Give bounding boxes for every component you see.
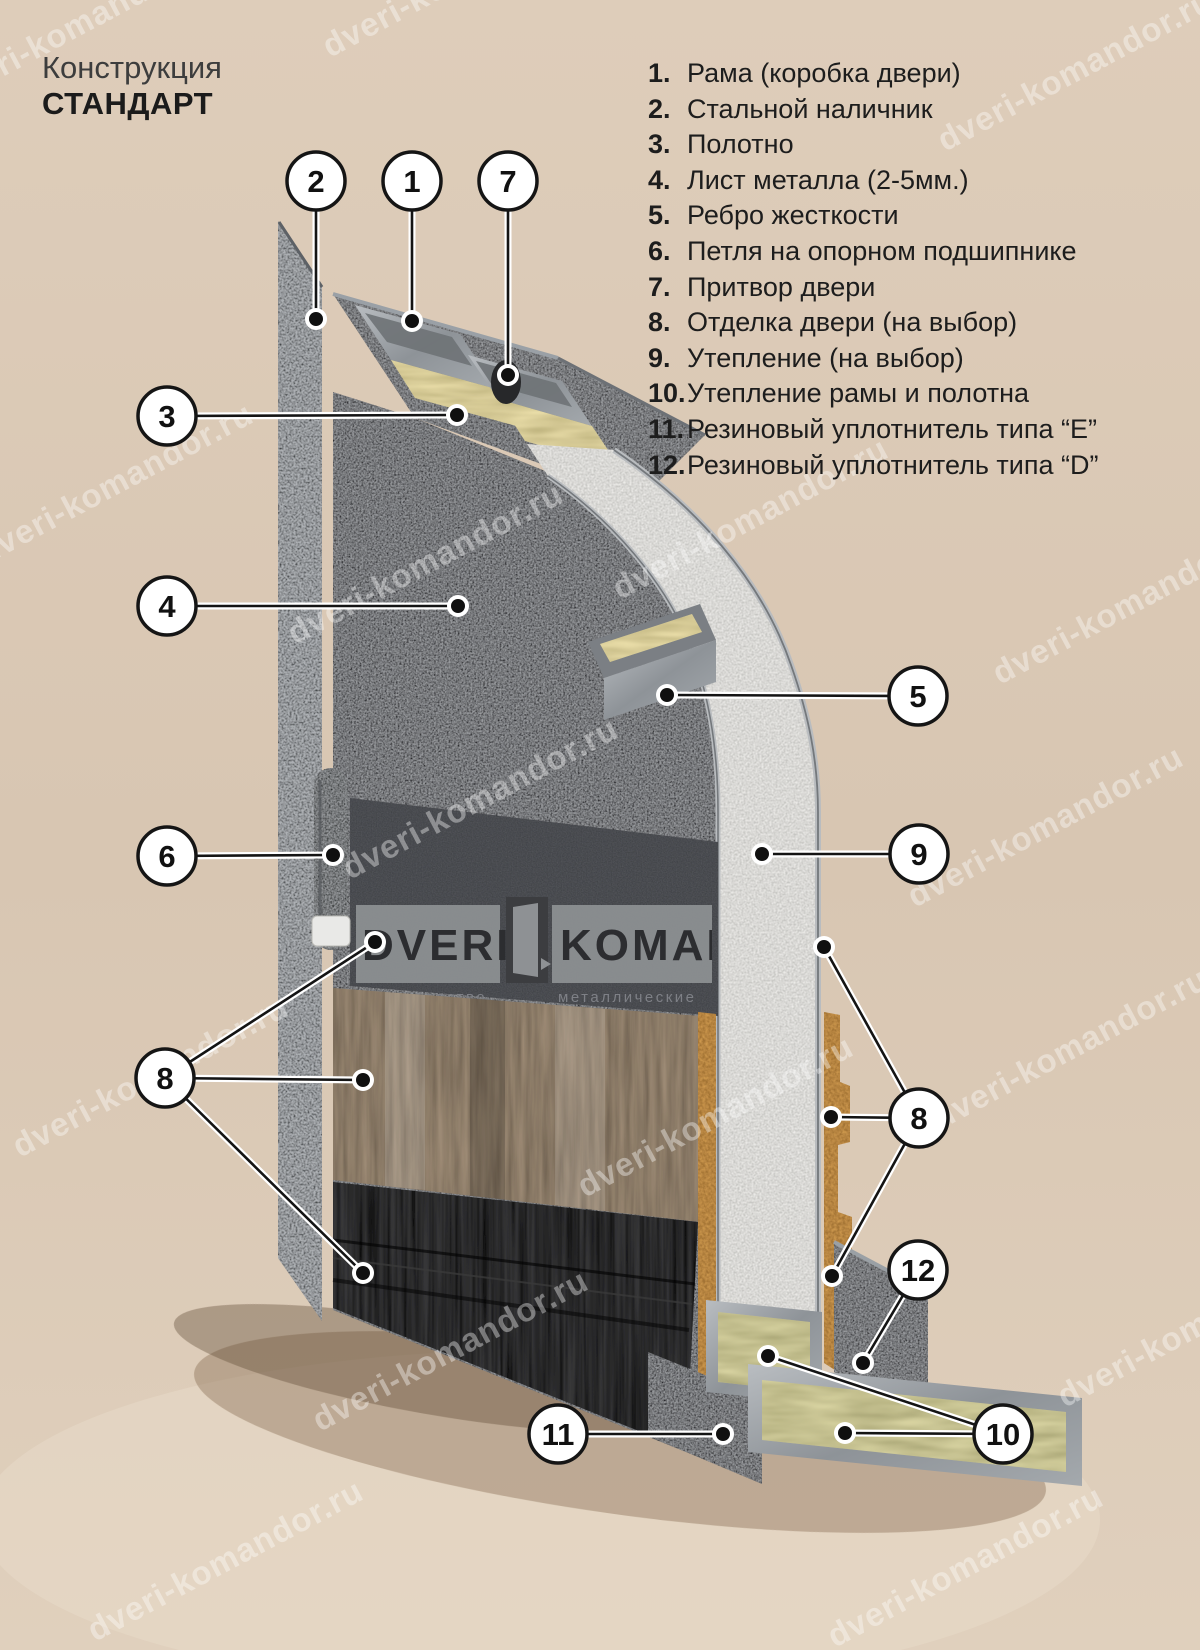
callout-10-badge: 10 [974,1405,1032,1463]
door-architrave [278,221,322,1321]
watermark-text: dveri-komandor.ru [0,395,259,572]
svg-text:8: 8 [156,1061,173,1096]
legend-item: 5.Ребро жесткости [648,198,1188,234]
svg-text:6: 6 [158,839,175,874]
legend-item-number: 11. [648,412,687,448]
logo-caption-right: металлические [558,989,697,1006]
callout-2-badge: 2 [287,152,345,210]
callout-8-left-badge: 8 [136,1049,194,1107]
legend-item-label: Утепление (на выбор) [687,343,964,373]
watermark-text: dveri-komandor.ru [316,0,604,64]
legend-item: 12.Резиновый уплотнитель типа “D” [648,448,1188,484]
legend-item-number: 12. [648,448,687,484]
legend-item: 1.Рама (коробка двери) [648,56,1188,92]
legend-item: 10.Утепление рамы и полотна [648,376,1188,412]
callout-11-badge: 11 [529,1405,587,1463]
parts-legend: 1.Рама (коробка двери) 2.Стальной наличн… [648,56,1188,483]
callout-1-badge: 1 [383,152,441,210]
watermark-text: dveri-komandor.ru [926,960,1200,1137]
svg-text:11: 11 [542,1417,575,1452]
legend-item-label: Лист металла (2-5мм.) [687,165,969,195]
legend-item: 6.Петля на опорном подшипнике [648,234,1188,270]
infographic-page: DVERI KOMANDOR металлические производств… [0,0,1200,1650]
svg-text:5: 5 [909,679,926,714]
legend-item-number: 6. [648,234,687,270]
svg-text:3: 3 [158,399,175,434]
page-title: Конструкция СТАНДАРТ [42,50,222,122]
callout-9-badge: 9 [890,825,948,883]
title-line-1: Конструкция [42,50,222,86]
legend-item-label: Притвор двери [687,272,875,302]
legend-item: 8.Отделка двери (на выбор) [648,305,1188,341]
watermark-text: dveri-komandor.ru [986,515,1200,692]
legend-item-number: 2. [648,92,687,128]
legend-item: 7.Притвор двери [648,270,1188,306]
legend-item-number: 3. [648,127,687,163]
svg-text:1: 1 [403,164,420,199]
svg-text:2: 2 [307,164,324,199]
legend-item-label: Рама (коробка двери) [687,58,961,88]
title-line-2: СТАНДАРТ [42,86,222,122]
legend-item-label: Петля на опорном подшипнике [687,236,1077,266]
svg-text:9: 9 [910,837,927,872]
callout-6-badge: 6 [138,827,196,885]
wood-dark-band [470,998,505,1200]
legend-item-label: Стальной наличник [687,94,933,124]
legend-item-number: 10. [648,376,687,412]
svg-text:8: 8 [910,1101,927,1136]
hinge-bearing-block [312,916,350,946]
legend-item-number: 5. [648,198,687,234]
svg-text:10: 10 [986,1417,1020,1452]
legend-item-number: 4. [648,163,687,199]
legend-item-label: Резиновый уплотнитель типа “E” [687,414,1097,444]
legend-item-number: 9. [648,341,687,377]
legend-item-label: Ребро жесткости [687,200,899,230]
logo-door-leaf-shape [513,903,538,977]
legend-item: 3.Полотно [648,127,1188,163]
callout-12-badge: 12 [889,1241,947,1299]
legend-item-label: Резиновый уплотнитель типа “D” [687,450,1099,480]
legend-item: 4.Лист металла (2-5мм.) [648,163,1188,199]
callout-5-badge: 5 [889,667,947,725]
svg-text:7: 7 [499,164,516,199]
legend-item-label: Полотно [687,129,794,159]
legend-item-number: 8. [648,305,687,341]
legend-item-label: Отделка двери (на выбор) [687,307,1017,337]
watermark-text: dveri-komandor.ru [901,738,1189,915]
legend-item: 2.Стальной наличник [648,92,1188,128]
watermark-text: dveri-komandor.ru [1051,1238,1200,1415]
callout-8-right-badge: 8 [890,1089,948,1147]
legend-item: 11.Резиновый уплотнитель типа “E” [648,412,1188,448]
svg-text:12: 12 [901,1253,935,1288]
legend-item-number: 7. [648,270,687,306]
legend-item-number: 1. [648,56,687,92]
callout-3-badge: 3 [138,387,196,445]
svg-text:4: 4 [158,589,176,624]
callout-7-badge: 7 [479,152,537,210]
callout-4-badge: 4 [138,577,196,635]
wood-light-band [385,992,425,1190]
legend-item-label: Утепление рамы и полотна [687,378,1029,408]
legend-item: 9.Утепление (на выбор) [648,341,1188,377]
